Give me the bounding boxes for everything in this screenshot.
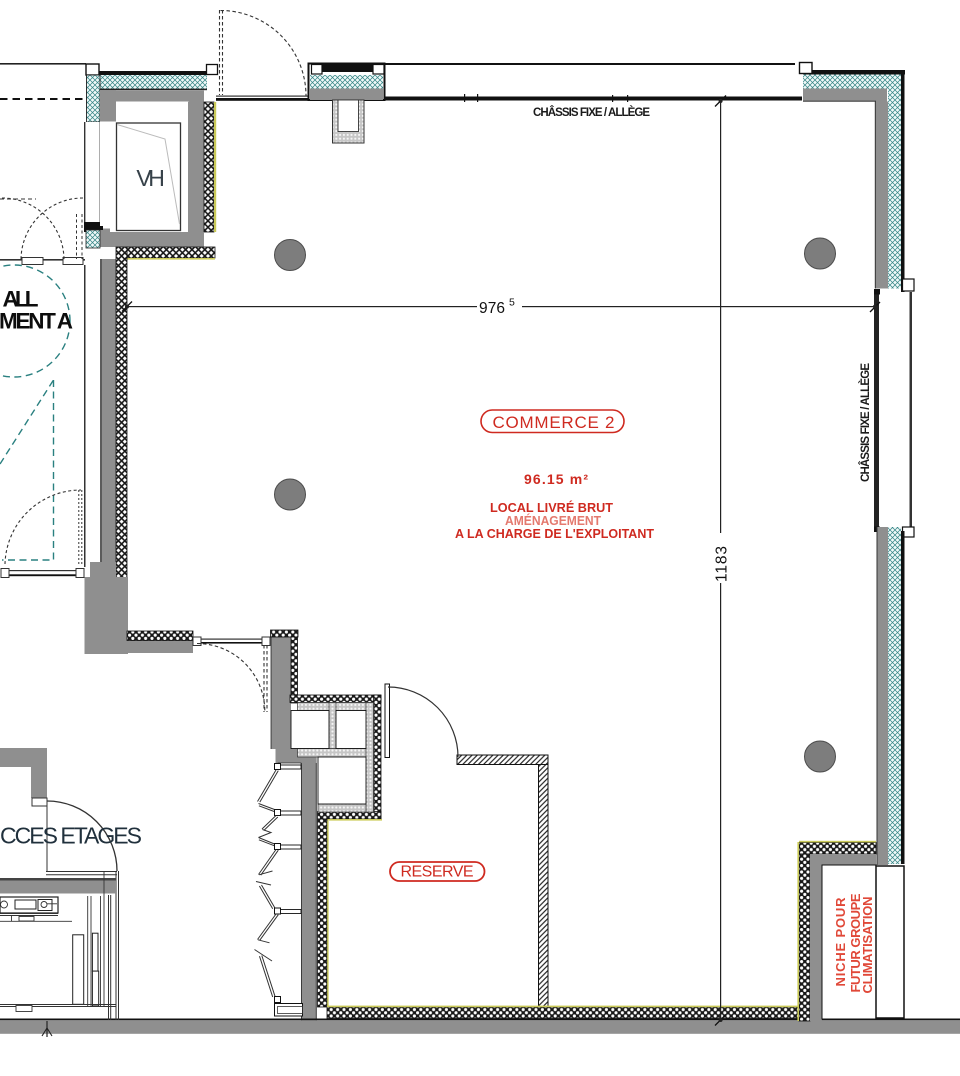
- svg-text:COMMERCE 2: COMMERCE 2: [493, 413, 615, 432]
- svg-text:CLIMATISATION: CLIMATISATION: [860, 897, 875, 994]
- svg-text:MENT A: MENT A: [0, 309, 73, 334]
- svg-text:NICHE POUR: NICHE POUR: [833, 897, 848, 987]
- svg-text:CHÂSSIS FIXE / ALLÈGE: CHÂSSIS FIXE / ALLÈGE: [859, 363, 872, 482]
- svg-text:CCES ETAGES: CCES ETAGES: [0, 823, 142, 849]
- svg-text:CHÂSSIS FIXE / ALLÈGE: CHÂSSIS FIXE / ALLÈGE: [533, 106, 650, 119]
- svg-text:96.15 m²: 96.15 m²: [524, 471, 588, 487]
- svg-text:1183: 1183: [714, 546, 731, 582]
- svg-text:5: 5: [509, 297, 515, 309]
- svg-text:VH: VH: [136, 165, 165, 191]
- svg-text:976: 976: [479, 300, 505, 317]
- svg-text:A LA CHARGE DE L'EXPLOITANT: A LA CHARGE DE L'EXPLOITANT: [455, 526, 654, 541]
- svg-text:RESERVE: RESERVE: [401, 864, 474, 881]
